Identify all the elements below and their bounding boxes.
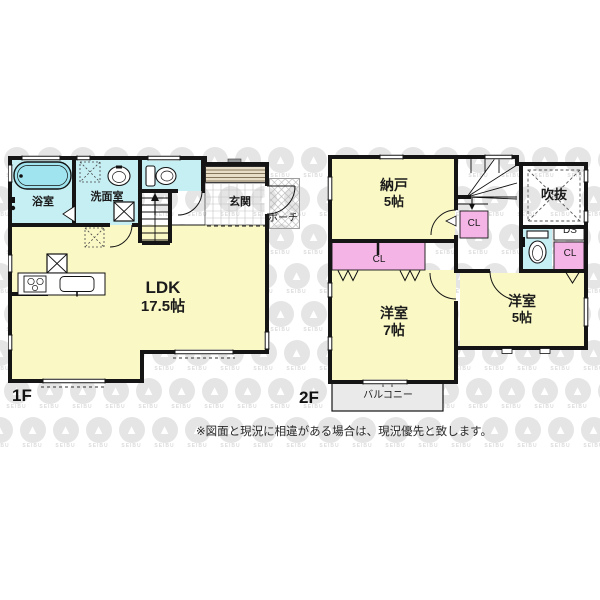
toilet-tank-1f [146, 166, 155, 186]
label-west5-name: 洋室 [508, 294, 536, 309]
label-ds: DS [563, 225, 577, 236]
label-cl-strip: CL [373, 254, 386, 265]
entrance-tile [205, 159, 267, 225]
kitchen-sink [60, 277, 94, 292]
label-bath: 浴室 [32, 196, 54, 208]
label-cl-under-stairs: CL [468, 218, 481, 229]
floorplan-1f-drawing [8, 155, 304, 395]
label-ldk-name: LDK [146, 279, 181, 298]
stairs-down-arrow [469, 204, 475, 210]
watermark-tile: ▲SEIBU [544, 417, 577, 450]
watermark-tile: ▲SEIBU [594, 301, 600, 334]
label-balcony: バルコニー [363, 390, 413, 401]
toilet-tank-2f [527, 231, 548, 238]
watermark-tile: ▲SEIBU [594, 147, 600, 180]
watermark-tile: ▲SEIBU [49, 417, 82, 450]
watermark-tile: ▲SEIBU [594, 224, 600, 257]
label-storage-size: 5帖 [384, 195, 404, 209]
floorplan-page: ▲SEIBU▲SEIBU▲SEIBU▲SEIBU▲SEIBU▲SEIBU▲SEI… [0, 0, 600, 600]
watermark-tile: ▲SEIBU [148, 417, 181, 450]
watermark-tile: ▲SEIBU [511, 417, 544, 450]
stove [24, 276, 46, 292]
watermark-tile: ▲SEIBU [0, 417, 16, 450]
label-entrance: 玄関 [229, 196, 251, 208]
label-washroom: 洗面室 [91, 191, 124, 203]
watermark-tile: ▲SEIBU [594, 378, 600, 411]
stairs-2f [456, 157, 517, 210]
label-west5-size: 5帖 [512, 311, 532, 325]
refrigerator-space [47, 254, 67, 273]
watermark-tile: ▲SEIBU [16, 417, 49, 450]
watermark-tile: ▲SEIBU [115, 417, 148, 450]
label-cl-right: CL [564, 248, 577, 259]
label-west7-size: 7帖 [383, 323, 405, 338]
label-floor-2f: 2F [299, 388, 319, 408]
stairs-up-arrow [151, 193, 159, 201]
label-ldk-size: 17.5帖 [141, 299, 185, 316]
washer-pan [114, 202, 134, 221]
watermark-tile: ▲SEIBU [82, 417, 115, 450]
toilet-bowl-2f [529, 241, 546, 263]
label-storage-name: 納戸 [380, 178, 408, 193]
disclaimer-footnote: ※図面と現況に相違がある場合は、現況優先と致します。 [196, 423, 492, 439]
label-void: 吹抜 [541, 188, 567, 202]
label-west7-name: 洋室 [380, 306, 408, 321]
label-floor-1f: 1F [12, 386, 32, 406]
watermark-tile: ▲SEIBU [577, 417, 600, 450]
label-porch: ポーチ [268, 213, 298, 224]
